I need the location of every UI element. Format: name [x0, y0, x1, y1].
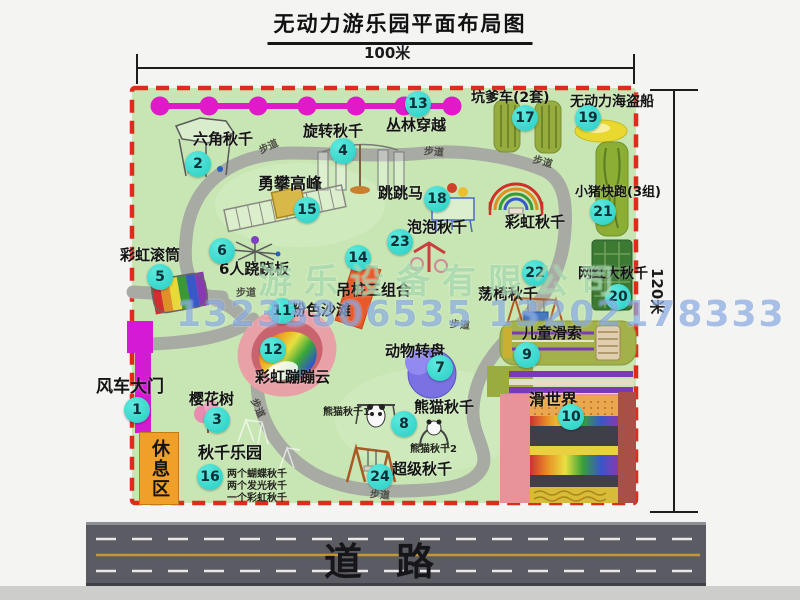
- kids-zipline-badge: 9: [514, 342, 540, 368]
- pit-cart-badge: 17: [512, 105, 538, 131]
- bubble-swing-label: 泡泡秋千: [407, 220, 467, 236]
- windmill-gate-badge: 1: [124, 397, 150, 423]
- kids-zipline-label: 儿童滑索: [522, 326, 582, 342]
- windmill-gate-label: 风车大门: [96, 379, 164, 397]
- pink-beach-badge: 11: [269, 298, 295, 324]
- rainbow-bouncing-cloud-badge: 12: [260, 337, 286, 363]
- rainbow-roller-label: 彩虹滚筒: [120, 248, 180, 264]
- hanging-post-combo-badge: 14: [345, 245, 371, 271]
- rotating-swing-label: 旋转秋千: [303, 124, 363, 140]
- hexagon-swing-label: 六角秋千: [193, 132, 253, 148]
- piggy-run-badge: 21: [590, 199, 616, 225]
- pirate-ship-badge: 19: [575, 105, 601, 131]
- influencer-big-swing-label: 网红大秋千: [578, 267, 648, 282]
- page-title: 无动力游乐园平面布局图: [268, 8, 533, 45]
- jungle-crossing-badge: 13: [405, 91, 431, 117]
- rocking-chair-swing-badge: 22: [522, 260, 548, 286]
- jungle-crossing-label: 丛林穿越: [386, 118, 446, 134]
- rocking-chair-swing-label: 荡椅秋千: [478, 287, 538, 303]
- rotating-swing-badge: 4: [330, 138, 356, 164]
- super-swing-label: 超级秋千: [392, 462, 452, 478]
- panda-swing-label: 熊猫秋千: [414, 400, 474, 416]
- bubble-swing-badge: 23: [387, 229, 413, 255]
- rainbow-bouncing-cloud-label: 彩虹蹦蹦云: [255, 370, 330, 386]
- panda-swing-1-note: 熊猫秋千1: [323, 403, 370, 418]
- hexagon-swing-badge: 2: [185, 151, 211, 177]
- animal-carousel-badge: 7: [427, 355, 453, 381]
- peak-climbing-label: 勇攀高峰: [258, 176, 322, 193]
- slide-world-badge: 10: [558, 404, 584, 430]
- walkway-label-4: 步道: [236, 284, 256, 299]
- jumping-horse-badge: 18: [424, 186, 450, 212]
- rest-area-box: 休息区: [139, 432, 179, 505]
- pit-cart-label: 坑爹车(2套): [471, 91, 550, 106]
- playground-plan-page: 无动力游乐园平面布局图 100米 120米 休息区 道路 风车大门1六角秋千2樱…: [0, 0, 800, 600]
- road-label: 道路: [324, 531, 468, 586]
- rainbow-roller-badge: 5: [147, 264, 173, 290]
- swing-park-note-3: 一个彩虹秋千: [227, 489, 287, 504]
- cherry-blossom-tree-label: 樱花树: [189, 392, 234, 408]
- walkway-label-2: 步道: [423, 142, 444, 159]
- panda-swing-2-note: 熊猫秋千2: [410, 440, 457, 455]
- six-person-seesaw-badge: 6: [209, 238, 235, 264]
- jumping-horse-label: 跳跳马: [378, 186, 423, 202]
- height-dimension-label: 120米: [647, 268, 668, 314]
- walkway-label-7: 步道: [369, 485, 390, 502]
- width-dimension-label: 100米: [364, 42, 410, 63]
- six-person-seesaw-label: 6人跷跷板: [219, 262, 289, 278]
- peak-climbing-badge: 15: [294, 197, 320, 223]
- influencer-big-swing-badge: 20: [605, 284, 631, 310]
- piggy-run-label: 小猪快跑(3组): [575, 186, 661, 200]
- swing-park-badge: 16: [197, 464, 223, 490]
- below-road-strip: [0, 586, 800, 600]
- rest-area-label: 休息区: [146, 439, 172, 499]
- panda-swing-badge: 8: [391, 411, 417, 437]
- pink-beach-label: 粉色沙滩: [291, 303, 351, 319]
- swing-park-label: 秋千乐园: [198, 445, 262, 462]
- plan-graphics: [0, 0, 800, 600]
- hanging-post-combo-label: 吊桩三组合: [336, 283, 411, 299]
- cherry-blossom-tree-badge: 3: [204, 407, 230, 433]
- rainbow-swing-label: 彩虹秋千: [505, 215, 565, 231]
- walkway-label-5: 步道: [449, 315, 470, 332]
